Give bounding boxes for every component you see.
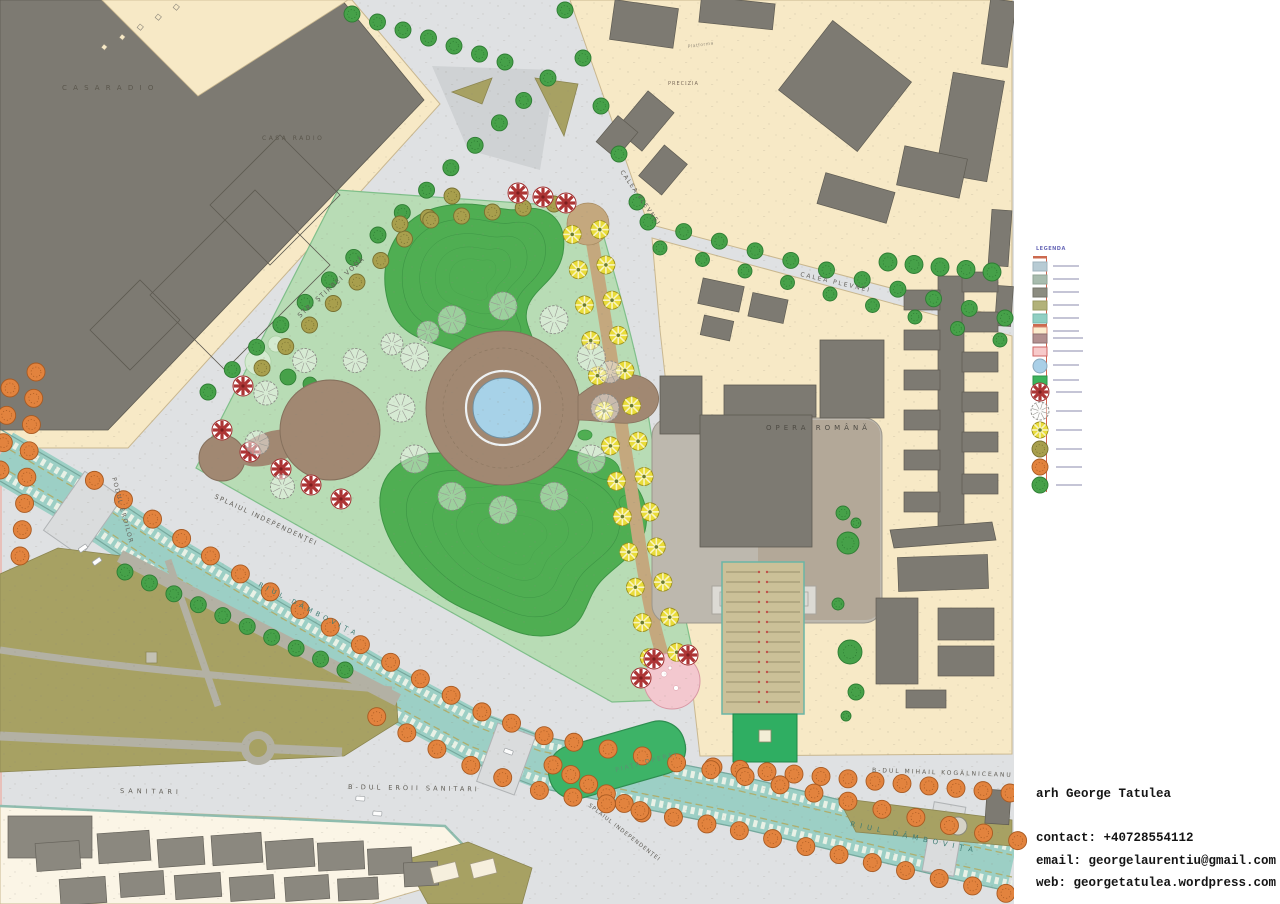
red-tree-center	[541, 195, 544, 198]
university-building	[897, 554, 988, 591]
legend-section-header	[1033, 324, 1047, 327]
legend-label-bar	[1056, 391, 1082, 393]
orange-tree	[351, 636, 369, 654]
orange-tree	[897, 862, 915, 880]
legend-panel	[1009, 256, 1083, 850]
sketch-tree	[245, 431, 269, 455]
red-tree-center	[1038, 390, 1041, 393]
parking-dot	[758, 591, 760, 593]
sketch-tree	[489, 292, 517, 320]
orange-tree	[562, 766, 580, 784]
sketch-tree	[401, 445, 429, 473]
sketch-tree	[540, 482, 568, 510]
parking-dot	[766, 651, 768, 653]
parking-dot	[766, 661, 768, 663]
parking-dot	[758, 641, 760, 643]
yellow-tree-center	[609, 444, 613, 448]
green-tree	[951, 322, 965, 336]
sketch-tree	[254, 381, 278, 405]
opera-main-hall	[700, 415, 812, 547]
legend-label-bar	[1053, 337, 1083, 339]
red-tree-center	[279, 467, 282, 470]
house	[229, 874, 275, 901]
street-label: SANITARI	[120, 787, 182, 796]
red-tree-center	[339, 497, 342, 500]
green-tree	[836, 506, 850, 520]
yellow-tree-center	[642, 475, 646, 479]
sketch-tree	[293, 348, 317, 372]
orange-tree	[0, 406, 16, 424]
legend-label-bar	[1053, 350, 1083, 352]
green-tree	[443, 160, 459, 176]
red-tree-center	[639, 676, 642, 679]
green-tree	[395, 22, 411, 38]
green-tree	[472, 46, 488, 62]
sketch-tree	[387, 394, 415, 422]
parking-dot	[758, 701, 760, 703]
sketch-tree	[438, 306, 466, 334]
yellow-tree-center	[570, 233, 574, 237]
yellow-tree-center	[627, 550, 631, 554]
comb-building-wing	[904, 410, 940, 430]
orange-tree	[664, 808, 682, 826]
green-tree	[467, 137, 483, 153]
green-tree	[344, 6, 360, 22]
green-tree	[781, 276, 795, 290]
yellow-tree-center	[610, 298, 614, 302]
legend-label-bar	[1056, 410, 1082, 412]
orange-tree	[494, 769, 512, 787]
street-label: OPERA ROMÂNĂ	[766, 423, 871, 432]
orange-tree	[580, 775, 598, 793]
university-building	[906, 690, 946, 708]
green-tree	[166, 586, 182, 602]
orange-tree	[398, 724, 416, 742]
credits-block: arh George Tatulea contact: +40728554112…	[1036, 783, 1276, 895]
yellow-tree-center	[621, 515, 625, 519]
orange-tree	[201, 547, 219, 565]
legend-label-bar	[1056, 466, 1082, 468]
legend-label-bar	[1056, 448, 1082, 450]
university-building	[938, 608, 994, 640]
green-tree	[446, 38, 462, 54]
orange-tree	[920, 777, 938, 795]
industrial-building	[988, 209, 1012, 266]
green-tree	[890, 281, 906, 297]
yellow-tree-center	[616, 333, 620, 337]
orange-tree	[764, 830, 782, 848]
orange-tree	[20, 442, 38, 460]
green-tree	[337, 662, 353, 678]
orange-tree	[975, 824, 993, 842]
olive-tree	[392, 216, 408, 232]
orange-tree	[25, 389, 43, 407]
parking-dot	[758, 601, 760, 603]
orange-tree	[27, 363, 45, 381]
orange-tree	[1001, 784, 1019, 802]
water-swatch	[1033, 314, 1047, 323]
orange-tree	[866, 772, 884, 790]
orange-tree	[805, 784, 823, 802]
orange-tree	[930, 870, 948, 888]
legend-label-bar	[1053, 379, 1079, 381]
green-tree	[593, 98, 609, 114]
comb-building-wing	[962, 432, 998, 452]
green-tree	[926, 291, 942, 307]
street-label: CASA RADIO	[262, 135, 324, 142]
site-plan-sheet: C A S A R A D I OCASA RADIOSTR. ŞTIRBEI …	[0, 0, 1280, 904]
parking-dot	[758, 681, 760, 683]
pond-legend-symbol	[1033, 359, 1047, 373]
orange-tree	[1032, 459, 1048, 475]
orange-tree	[368, 708, 386, 726]
yellow-tree-center	[615, 479, 619, 483]
orange-tree	[564, 788, 582, 806]
parking-dot	[766, 681, 768, 683]
red-tree-center	[220, 428, 223, 431]
legend-section-header	[1033, 256, 1047, 259]
parking-dot	[766, 641, 768, 643]
house	[337, 877, 378, 901]
orange-tree	[730, 822, 748, 840]
orange-tree	[11, 547, 29, 565]
green-tree	[961, 300, 977, 316]
green-tree	[215, 608, 231, 624]
yellow-tree-center	[598, 228, 602, 232]
orange-tree	[830, 846, 848, 864]
house	[284, 874, 330, 901]
orange-tree	[797, 838, 815, 856]
green-tree	[838, 640, 862, 664]
proposed-paving-swatch	[1033, 347, 1047, 356]
comb-building-wing	[904, 492, 940, 512]
parking-dot	[758, 691, 760, 693]
yellow-tree-center	[623, 369, 627, 373]
yellow-tree-center	[577, 268, 581, 272]
orange-tree	[411, 670, 429, 688]
orange-tree	[473, 703, 491, 721]
sketch-tree	[577, 445, 605, 473]
green-tree	[313, 651, 329, 667]
car	[356, 796, 365, 801]
green-tree	[837, 532, 859, 554]
green-tree	[1032, 477, 1048, 493]
orange-tree	[974, 782, 992, 800]
legend-title: LEGENDA	[1036, 246, 1066, 252]
parking-dot	[766, 691, 768, 693]
green-tree	[141, 575, 157, 591]
green-tree	[823, 287, 837, 301]
parking-dot	[758, 571, 760, 573]
legend-label-bar	[1053, 265, 1079, 267]
yellow-tree-center	[655, 545, 659, 549]
legend-label-bar	[1053, 330, 1079, 332]
olive-tree	[325, 296, 341, 312]
comb-building-spine	[938, 276, 964, 530]
parking-dot	[758, 651, 760, 653]
orange-tree	[428, 740, 446, 758]
parking-lot	[722, 562, 804, 714]
orange-tree	[462, 756, 480, 774]
map-area: C A S A R A D I OCASA RADIOSTR. ŞTIRBEI …	[0, 0, 1019, 904]
green-tree	[497, 54, 513, 70]
sketch-tree	[1031, 402, 1049, 420]
green-tree	[516, 92, 532, 108]
green-tree	[224, 362, 240, 378]
parking-dot	[766, 671, 768, 673]
orange-tree	[1, 379, 19, 397]
parking-dot	[766, 611, 768, 613]
orange-tree	[736, 768, 754, 786]
orange-tree	[698, 815, 716, 833]
green-tree	[200, 384, 216, 400]
green-tree	[993, 333, 1007, 347]
orange-tree	[839, 770, 857, 788]
green-tree	[997, 310, 1013, 326]
olive-tree	[423, 212, 439, 228]
house	[157, 836, 205, 867]
yellow-tree-center	[668, 615, 672, 619]
green-tree	[696, 253, 710, 267]
green-tree	[117, 564, 133, 580]
house	[59, 876, 107, 904]
parking-dot	[758, 621, 760, 623]
green-tree	[957, 261, 975, 279]
street-label: C A S A R A D I O	[62, 84, 155, 92]
parking-dot	[758, 581, 760, 583]
orange-tree	[231, 565, 249, 583]
green-tree	[908, 310, 922, 324]
yellow-tree-center	[630, 404, 634, 408]
orange-tree	[947, 779, 965, 797]
green-tree	[851, 518, 861, 528]
orange-tree	[535, 727, 553, 745]
parking-dot	[766, 631, 768, 633]
sketch-tree	[270, 475, 294, 499]
orange-tree	[173, 529, 191, 547]
sidewalk-swatch	[1033, 275, 1047, 284]
green-tree	[491, 115, 507, 131]
olive-tree	[397, 231, 413, 247]
parking-dot	[758, 631, 760, 633]
orange-tree	[863, 854, 881, 872]
green-tree	[557, 2, 573, 18]
olive-tree	[373, 253, 389, 269]
olive-tree	[454, 208, 470, 224]
yellow-tree-center	[1038, 428, 1042, 432]
parking-dot	[766, 701, 768, 703]
comb-building-wing	[904, 370, 940, 390]
yellow-tree-center	[634, 585, 638, 589]
orange-tree	[615, 794, 633, 812]
yellow-tree-center	[596, 374, 600, 378]
sketch-tree	[591, 394, 619, 422]
green-tree	[747, 243, 763, 259]
house	[265, 838, 315, 869]
university-building	[938, 646, 994, 676]
house	[97, 830, 151, 864]
yellow-tree-center	[636, 439, 640, 443]
house	[317, 841, 364, 871]
sketch-tree	[489, 496, 517, 524]
existing-green-swatch	[1033, 301, 1047, 310]
green-tree	[866, 299, 880, 313]
olive-tree	[349, 274, 365, 290]
legend-label-bar	[1053, 317, 1079, 319]
green-tree	[264, 629, 280, 645]
olive-tree	[302, 317, 318, 333]
yellow-tree-center	[648, 510, 652, 514]
car	[373, 811, 382, 816]
orange-tree	[18, 468, 36, 486]
orange-tree	[144, 510, 162, 528]
yellow-tree-center	[640, 621, 644, 625]
opera-east-wing	[820, 340, 884, 418]
parking-dot	[766, 571, 768, 573]
roadway-swatch	[1033, 262, 1047, 271]
orange-tree	[565, 733, 583, 751]
legend-label-bar	[1056, 484, 1082, 486]
green-tree	[879, 253, 897, 271]
sketch-tree	[417, 321, 439, 343]
orange-tree	[964, 877, 982, 895]
legend-label-bar	[1053, 291, 1079, 293]
comb-building-wing	[962, 474, 998, 494]
parking-dot	[766, 601, 768, 603]
street-label: PRECIZIA	[668, 81, 699, 87]
red-tree-center	[652, 657, 655, 660]
olive-tree	[484, 204, 500, 220]
yellow-tree-center	[583, 303, 587, 307]
green-tree	[239, 618, 255, 634]
green-tree	[783, 252, 799, 268]
university-building	[876, 598, 918, 684]
green-tree	[931, 258, 949, 276]
parking-dot	[766, 581, 768, 583]
red-tree-center	[309, 483, 312, 486]
olive-tree	[254, 360, 270, 376]
orange-tree	[758, 763, 776, 781]
orange-tree	[13, 521, 31, 539]
green-tree	[419, 182, 435, 198]
sketch-tree	[540, 306, 568, 334]
sketch-tree	[343, 348, 367, 372]
orange-tree	[16, 494, 34, 512]
red-tree-center	[686, 653, 689, 656]
olive-tree	[1032, 441, 1048, 457]
monument-base	[759, 730, 771, 742]
green-tree	[711, 233, 727, 249]
sketch-tree	[381, 333, 403, 355]
orange-tree	[382, 653, 400, 671]
orange-tree	[544, 756, 562, 774]
green-tree	[832, 598, 844, 610]
green-tree	[841, 711, 851, 721]
green-tree	[611, 146, 627, 162]
red-tree-center	[241, 384, 244, 387]
orange-tree	[907, 808, 925, 826]
green-tree	[190, 597, 206, 613]
site-plan-map: C A S A R A D I OCASA RADIOSTR. ŞTIRBEI …	[0, 0, 1280, 904]
industrial-building	[610, 0, 679, 48]
orange-tree	[771, 776, 789, 794]
comb-building-wing	[962, 392, 998, 412]
yellow-tree-center	[661, 580, 665, 584]
orange-tree	[997, 884, 1015, 902]
green-tree	[540, 70, 556, 86]
green-tree	[273, 317, 289, 333]
legend-label-bar	[1056, 429, 1082, 431]
orange-tree	[85, 471, 103, 489]
sketch-tree	[401, 343, 429, 371]
contact-web: web: georgetatulea.wordpress.com	[1036, 872, 1276, 894]
comb-building-wing	[904, 450, 940, 470]
sketch-tree	[438, 482, 466, 510]
orange-tree	[702, 761, 720, 779]
yellow-tree-center	[589, 339, 593, 343]
house	[35, 840, 81, 871]
parking-dot	[766, 591, 768, 593]
green-tree	[983, 263, 1001, 281]
comb-building-wing	[904, 330, 940, 350]
red-tree-center	[564, 201, 567, 204]
parking-dot	[766, 621, 768, 623]
green-tree	[575, 50, 591, 66]
sketch-tree	[599, 361, 621, 383]
opera-north-block	[724, 385, 816, 417]
house	[211, 832, 263, 865]
green-tree	[905, 256, 923, 274]
comb-building-wing	[962, 352, 998, 372]
legend-label-bar	[1053, 364, 1079, 366]
opera-west-wing	[660, 376, 702, 434]
proposed-plaza-swatch	[1033, 334, 1047, 343]
orange-tree	[812, 767, 830, 785]
contact-phone: contact: +40728554112	[1036, 827, 1276, 849]
green-tree	[676, 224, 692, 240]
green-tree	[249, 339, 265, 355]
orange-tree	[22, 416, 40, 434]
architect-name: arh George Tatulea	[1036, 783, 1276, 805]
green-tree	[421, 30, 437, 46]
yellow-tree-center	[604, 263, 608, 267]
orange-tree	[839, 792, 857, 810]
contact-email: email: georgelaurentiu@gmail.com	[1036, 850, 1276, 872]
orange-tree	[503, 714, 521, 732]
orange-tree	[893, 775, 911, 793]
green-tree	[288, 640, 304, 656]
green-tree	[370, 227, 386, 243]
legend-label-bar	[1053, 278, 1079, 280]
legend-label-bar	[1053, 304, 1079, 306]
orange-tree	[940, 816, 958, 834]
olive-tree	[444, 188, 460, 204]
house	[119, 870, 165, 897]
orange-tree	[530, 781, 548, 799]
parking-dot	[758, 661, 760, 663]
red-tree-center	[516, 191, 519, 194]
parking-dot	[758, 611, 760, 613]
orange-tree	[631, 802, 649, 820]
orange-tree	[873, 800, 891, 818]
orange-tree	[442, 686, 460, 704]
orange-tree	[1009, 832, 1027, 850]
existing-building-swatch	[1033, 288, 1047, 297]
green-tree	[653, 241, 667, 255]
olive-tree	[278, 339, 294, 355]
parking-dot	[758, 671, 760, 673]
green-tree	[848, 684, 864, 700]
